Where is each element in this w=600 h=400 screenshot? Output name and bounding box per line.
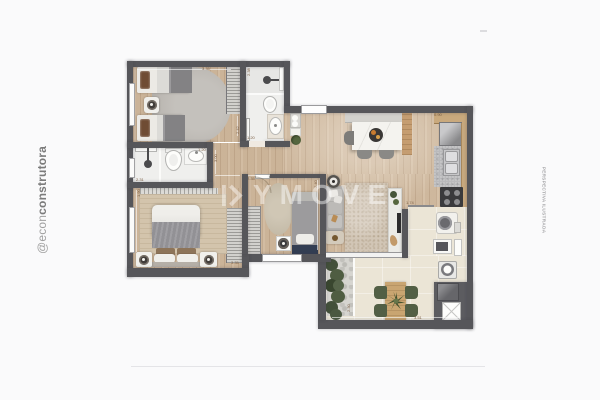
svg-text:YMOVE: YMOVE [253, 179, 394, 210]
